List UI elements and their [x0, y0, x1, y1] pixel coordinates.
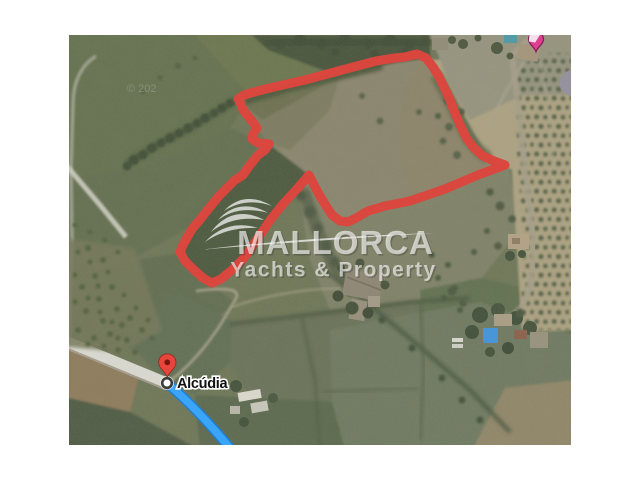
svg-text:Alcúdia: Alcúdia — [177, 376, 229, 392]
svg-text:MALLORCA: MALLORCA — [237, 224, 434, 261]
svg-text:© 202: © 202 — [127, 83, 157, 95]
svg-text:Yachts & Property: Yachts & Property — [230, 259, 436, 282]
